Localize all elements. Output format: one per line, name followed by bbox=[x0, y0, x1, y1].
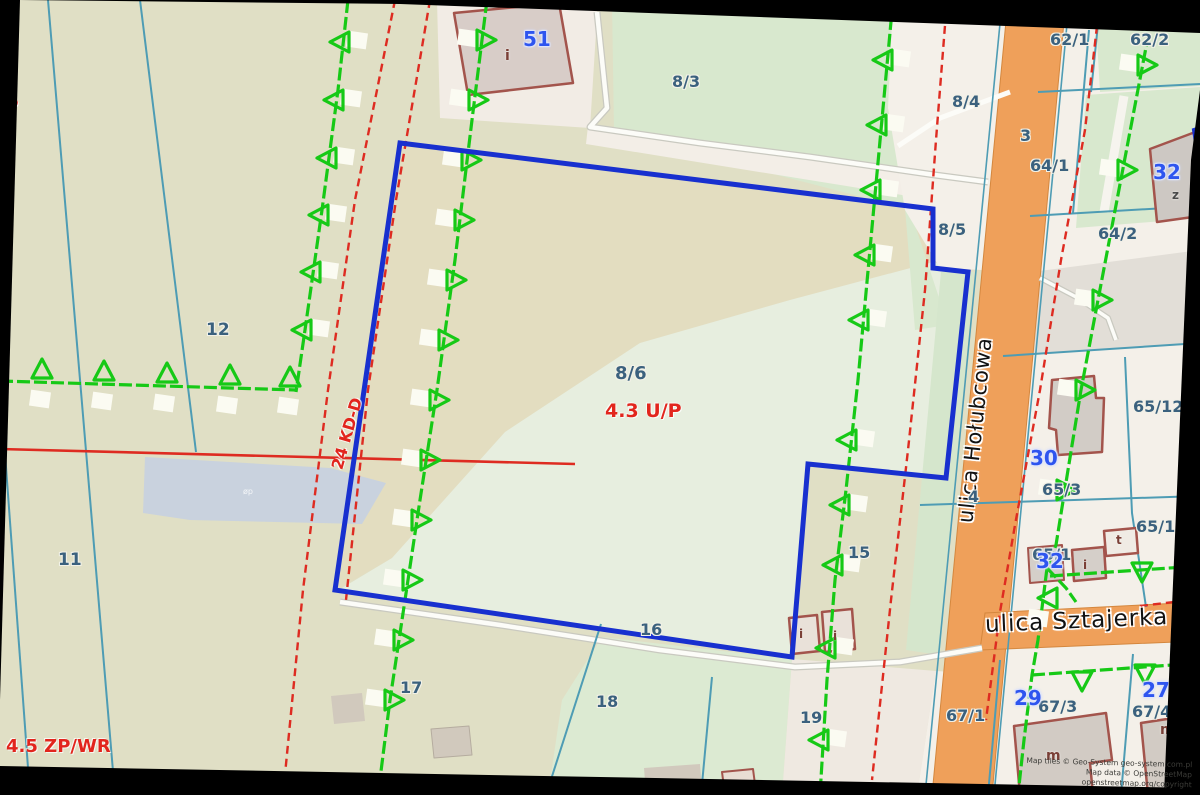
parcel-label-62-2: 62/2 bbox=[1130, 30, 1169, 49]
parcel-label-3: 3 bbox=[1020, 126, 1031, 145]
zone-label-partial: U/P bbox=[0, 96, 18, 116]
building-letter-i-b: i bbox=[833, 629, 837, 643]
map-canvas[interactable]: U/P 4.5 ZP/WR 4.3 U/P 24 KD-D ulica Hołu… bbox=[0, 0, 1200, 795]
building-letter-t: t bbox=[1116, 533, 1122, 547]
building-number-27: 27 bbox=[1142, 678, 1170, 702]
parcel-label-8-4: 8/4 bbox=[952, 92, 980, 111]
parcel-label-19: 19 bbox=[800, 708, 822, 727]
zone-label-up: 4.3 U/P bbox=[605, 400, 682, 422]
parcel-label-16: 16 bbox=[640, 620, 662, 639]
parcel-label-11: 11 bbox=[58, 550, 82, 570]
building-number-30: 30 bbox=[1030, 446, 1058, 470]
map-layers bbox=[0, 0, 1200, 795]
parcel-label-12: 12 bbox=[206, 320, 230, 340]
building-number-32-south: 32 bbox=[1036, 549, 1064, 573]
parcel-label-8-3: 8/3 bbox=[672, 72, 700, 91]
building-letter-i-c: i bbox=[1083, 558, 1087, 572]
building-letter-i-51: i bbox=[505, 48, 510, 64]
parcel-label-65-12: 65/12 bbox=[1133, 397, 1183, 416]
parcel-label-67-4: 67/4 bbox=[1132, 702, 1171, 721]
building-letter-z: z bbox=[1172, 188, 1179, 202]
parcel-label-18: 18 bbox=[596, 692, 618, 711]
parcel-label-65-11: 65/11 bbox=[1136, 517, 1186, 536]
parcel-label-8-6: 8/6 bbox=[615, 363, 647, 384]
parcel-label-8-5: 8/5 bbox=[938, 220, 966, 239]
building-number-32-north: 32 bbox=[1153, 160, 1181, 184]
building-letter-i-a: i bbox=[799, 627, 803, 641]
parcel-label-15: 15 bbox=[848, 543, 870, 562]
building-letter-m-b: m bbox=[1160, 722, 1175, 738]
parcel-label-65-3: 65/3 bbox=[1042, 480, 1081, 499]
parcel-label-64-1: 64/1 bbox=[1030, 156, 1069, 175]
map-attribution: Map tiles © Geo-System geo-system.com.pl… bbox=[1022, 756, 1193, 790]
parcel-label-17: 17 bbox=[400, 678, 422, 697]
building-number-51: 51 bbox=[523, 27, 551, 51]
parcel-label-64-2: 64/2 bbox=[1098, 224, 1137, 243]
parcel-label-62-1: 62/1 bbox=[1050, 30, 1089, 49]
parcel-label-67-1: 67/1 bbox=[946, 706, 985, 725]
parcel-label-4: 4 bbox=[968, 487, 979, 506]
pond-label: øp bbox=[243, 487, 253, 496]
parcel-label-67-3: 67/3 bbox=[1038, 697, 1077, 716]
zone-label-zp-wr: 4.5 ZP/WR bbox=[6, 736, 111, 757]
building-number-29: 29 bbox=[1014, 686, 1042, 710]
